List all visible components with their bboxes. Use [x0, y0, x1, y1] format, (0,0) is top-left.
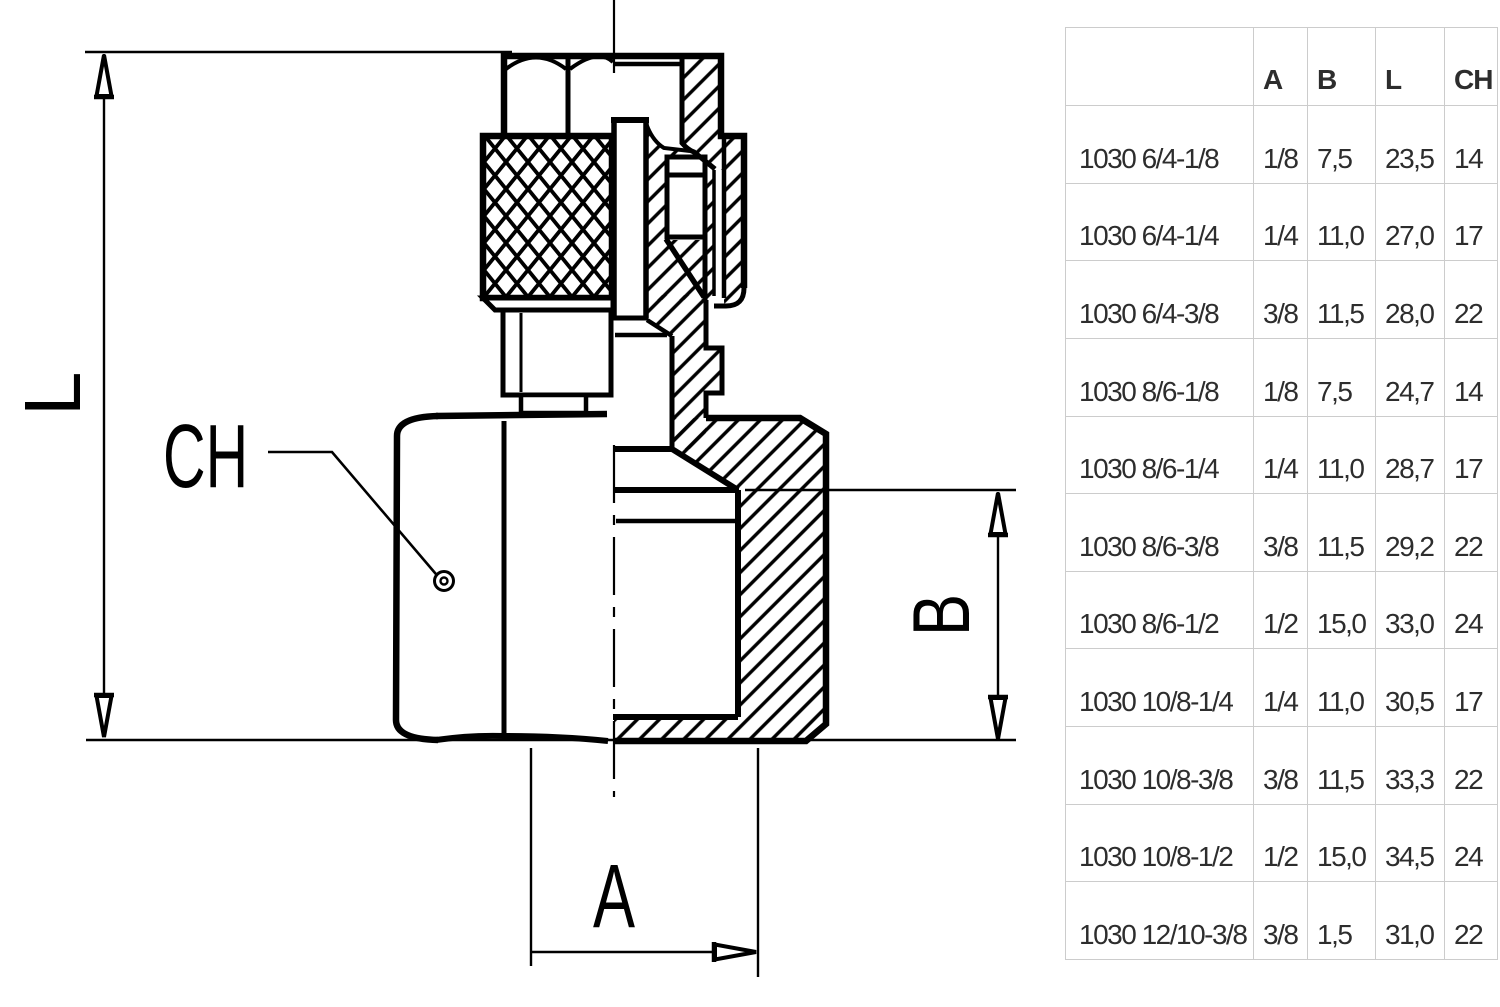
svg-text:CH: CH	[163, 407, 248, 508]
svg-text:B: B	[897, 594, 987, 636]
svg-text:A: A	[593, 847, 635, 947]
svg-text:L: L	[8, 372, 97, 417]
